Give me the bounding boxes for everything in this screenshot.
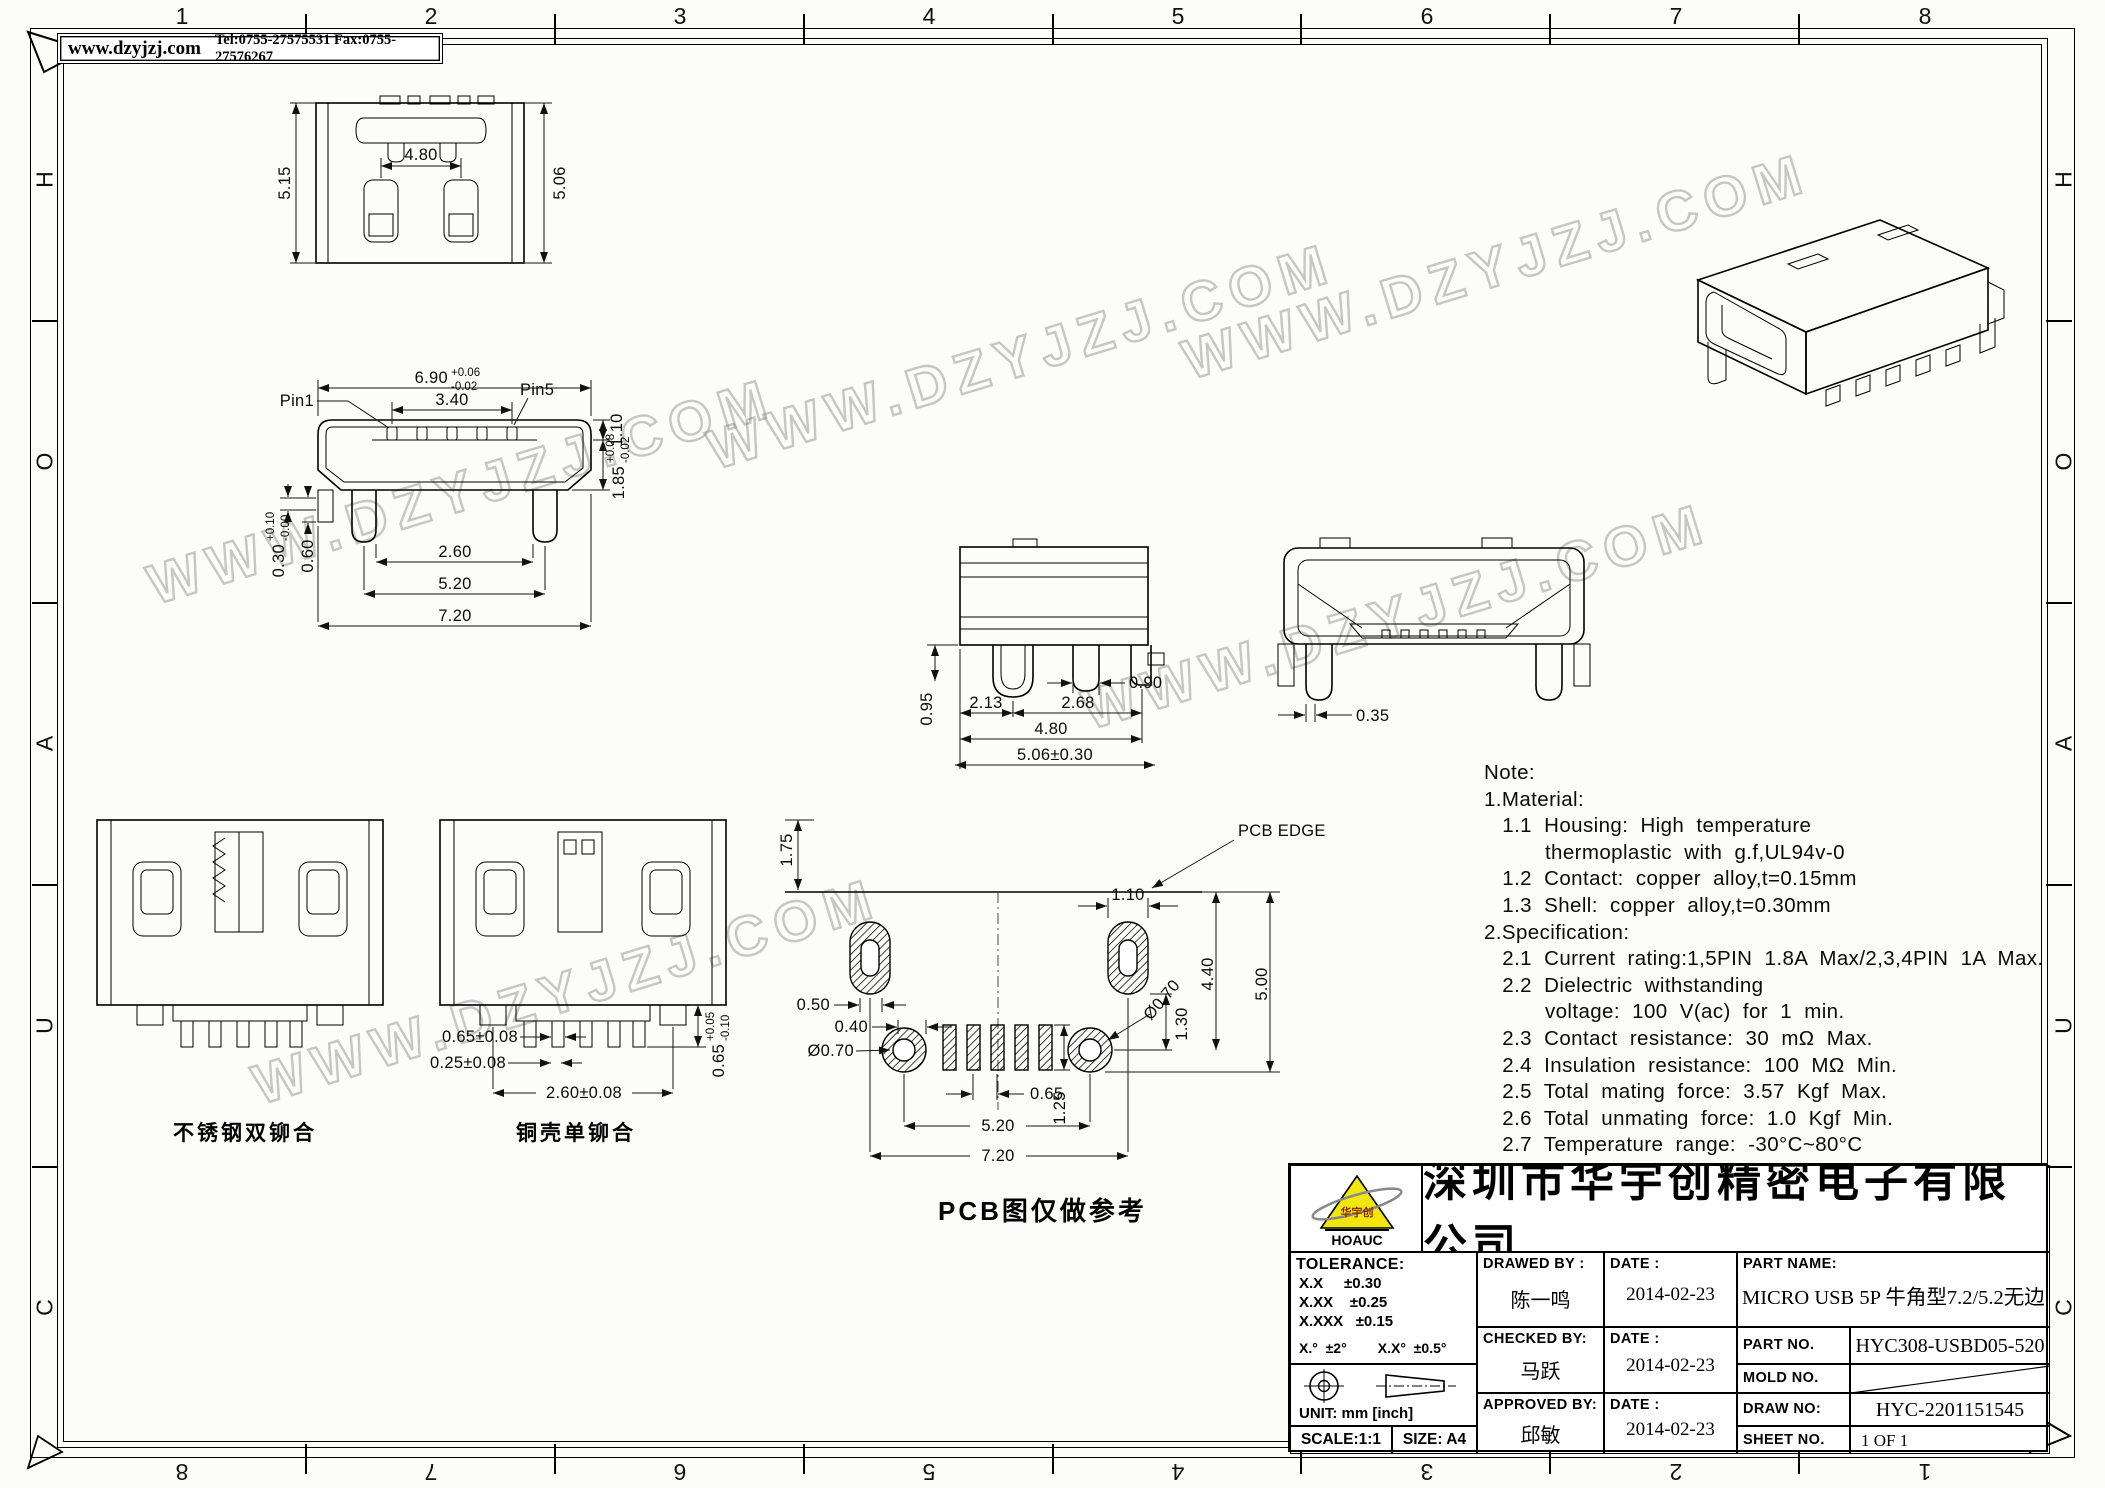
note-line: 2.7 Temperature range: -30°C~80°C [1484, 1132, 2064, 1159]
drawed-by-label: DRAWED BY : [1478, 1253, 1603, 1272]
tolerance-cell: TOLERANCE: X.X ±0.30 X.XX ±0.25 X.XXX ±0… [1290, 1252, 1477, 1364]
zone-letter-left: O [32, 447, 59, 477]
checked-by-cell: CHECKED BY: 马跃 [1477, 1327, 1604, 1393]
dim-front-pin-span: 3.40 [435, 391, 468, 409]
approved-by-cell: APPROVED BY: 邱敏 [1477, 1393, 1604, 1454]
note-line: 2.Specification: [1484, 920, 2064, 947]
zone-number-top: 3 [665, 3, 695, 30]
dim-pcb-v3: 5.00 [1253, 967, 1271, 1000]
dim-pcb-v2: 4.40 [1199, 957, 1217, 990]
zone-number-top: 1 [167, 3, 197, 30]
zone-letter-left: A [32, 729, 59, 759]
date-label: DATE : [1605, 1253, 1736, 1272]
zone-letter-left: H [32, 165, 59, 195]
dim-detail2-a: 0.65±0.08 [442, 1028, 518, 1046]
part-name-label: PART NAME: [1738, 1253, 2049, 1272]
tolerance-line: X.XXX ±0.15 [1291, 1312, 1476, 1331]
mold-no-blank-diagonal [1851, 1365, 2050, 1393]
zone-number-top: 6 [1412, 3, 1442, 30]
drawed-by-value: 陈一鸣 [1478, 1284, 1603, 1313]
logo-inner-text: 华宇创 [1341, 1205, 1374, 1219]
sheet-no-value-cell: 1 OF 1 [1850, 1426, 2050, 1454]
date-checked-value: 2014-02-23 [1605, 1355, 1736, 1377]
dim-front-step2: 0.60 [299, 539, 317, 572]
projection-symbol [1294, 1367, 1474, 1405]
part-no-label: PART NO. [1738, 1328, 1849, 1353]
tolerance-line: X.X ±0.30 [1291, 1274, 1476, 1293]
tolerance-line: X.XX ±0.25 [1291, 1293, 1476, 1312]
title-block: 华宇创 HOAUC 深圳市华宇创精密电子有限公司 TOLERANCE: X.X … [1288, 1163, 2048, 1452]
date-approved-value: 2014-02-23 [1605, 1419, 1736, 1441]
note-line: 2.5 Total mating force: 3.57 Kgf Max. [1484, 1079, 2064, 1106]
sheet-no-value: 1 OF 1 [1851, 1431, 2049, 1451]
dim-front-legs-inner: 2.60 [438, 543, 471, 561]
dim-top-left: 5.15 [276, 166, 294, 199]
top-view-dims: 5.15 5.06 4.80 [276, 103, 569, 263]
zone-number-top: 4 [914, 3, 944, 30]
dim-detail2-b: 0.25±0.08 [430, 1054, 506, 1072]
part-no-label-cell: PART NO. [1737, 1327, 1850, 1364]
detail2-dims: 0.65±0.08 0.25±0.08 2.60±0.08 0.65 +0.05… [430, 1005, 732, 1102]
view-rear: 0.35 [1262, 528, 1607, 768]
draw-no-value-cell: HYC-2201151545 [1850, 1393, 2050, 1426]
zone-number-bottom: 3 [1412, 1458, 1442, 1485]
dim-front-step1-group: 0.30 +0.10 -0.00 [265, 512, 292, 577]
dim-front-height-tol-minus: -0.02 [620, 437, 632, 463]
dim-rear-leg: 0.35 [1356, 707, 1389, 725]
zone-number-bottom: 1 [1910, 1458, 1940, 1485]
company-name: 深圳市华宇创精密电子有限公司 [1422, 1165, 2050, 1252]
approved-by-label: APPROVED BY: [1478, 1394, 1603, 1413]
detail1-outline [97, 820, 383, 1047]
rear-view-dims: 0.35 [1278, 704, 1389, 725]
zone-letter-right: O [2051, 447, 2078, 477]
drawing-sheet: 1 2 3 4 5 6 7 8 8 7 6 5 4 3 2 1 H O A U … [0, 0, 2105, 1488]
company-logo: 华宇创 HOAUC [1291, 1166, 1422, 1252]
size-cell: SIZE: A4 [1392, 1426, 1477, 1454]
unit-label: UNIT: mm [inch] [1291, 1405, 1413, 1422]
note-line: thermoplastic with g.f,UL94v-0 [1484, 840, 2064, 867]
corner-arrow-bottom-left [24, 1430, 70, 1476]
drawed-by-cell: DRAWED BY : 陈一鸣 [1477, 1252, 1604, 1327]
view-side: 0.95 0.90 2.13 2.68 4.80 5.06±0.30 [915, 533, 1205, 791]
note-line: 2.4 Insulation resistance: 100 MΩ Min. [1484, 1053, 2064, 1080]
dim-detail2-d-tol-plus: +0.05 [705, 1012, 717, 1041]
note-line: voltage: 100 V(ac) for 1 min. [1484, 999, 2064, 1026]
sheet-no-label-cell: SHEET NO. [1737, 1426, 1850, 1454]
note-line: 2.6 Total unmating force: 1.0 Kgf Min. [1484, 1106, 2064, 1133]
pcb-caption: PCB图仅做参考 [938, 1196, 1147, 1226]
pcb-dims: 1.75 PCB EDGE 1.10 0.50 0.40 Ø0.70 Ø0.70… [778, 820, 1326, 1165]
view-front: 6.90 +0.06 -0.02 3.40 Pin1 Pin5 1.10 1.8… [252, 348, 662, 668]
zone-letter-left: U [32, 1011, 59, 1041]
date-checked-cell: DATE : 2014-02-23 [1604, 1327, 1737, 1393]
note-line: 1.Material: [1484, 787, 2064, 814]
iso-view-outline [1698, 220, 2004, 406]
date-approved-cell: DATE : 2014-02-23 [1604, 1393, 1737, 1454]
note-line: 1.2 Contact: copper alloy,t=0.15mm [1484, 866, 2064, 893]
scale-label: SCALE:1:1 [1291, 1427, 1391, 1453]
dim-pcb-pad-height: 1.25 [1051, 1091, 1069, 1124]
zone-letter-left: C [32, 1293, 59, 1323]
note-line: Note: [1484, 760, 2064, 787]
zone-number-top: 8 [1910, 3, 1940, 30]
logo-cell: 华宇创 HOAUC [1290, 1165, 1422, 1252]
header-contact: Tel:0755-27575531 Fax:0755-27576267 [215, 32, 442, 66]
view-iso [1580, 172, 2020, 507]
detail2-outline [440, 820, 726, 1047]
dim-side-body: 0.95 [918, 692, 936, 725]
dim-detail2-c: 2.60±0.08 [546, 1084, 622, 1102]
mold-no-label-cell: MOLD NO. [1737, 1364, 1850, 1393]
pcb-edge-label: PCB EDGE [1238, 822, 1326, 840]
top-view-outline [316, 96, 524, 263]
note-line: 1.3 Shell: copper alloy,t=0.30mm [1484, 893, 2064, 920]
tolerance-angles: X.° ±2° X.X° ±0.5° [1291, 1340, 1476, 1356]
dim-side-total: 5.06±0.30 [1017, 746, 1093, 764]
label-pin5: Pin5 [520, 381, 554, 399]
mold-no-label: MOLD NO. [1738, 1365, 1849, 1386]
dim-pcb-total: 7.20 [981, 1147, 1014, 1165]
view-top: 5.15 5.06 4.80 [268, 88, 568, 283]
zone-number-bottom: 4 [1163, 1458, 1193, 1485]
view-pcb: 1.75 PCB EDGE 1.10 0.50 0.40 Ø0.70 Ø0.70… [770, 778, 1350, 1248]
date-drawed-cell: DATE : 2014-02-23 [1604, 1252, 1737, 1327]
zone-number-bottom: 7 [416, 1458, 446, 1485]
part-no-value-cell: HYC308-USBD05-520 [1850, 1327, 2050, 1364]
dim-pcb-slot-width: 1.10 [1111, 886, 1144, 904]
detail1-label: 不锈钢双铆合 [173, 1121, 317, 1145]
dim-top-right: 5.06 [551, 166, 569, 199]
part-no-value: HYC308-USBD05-520 [1851, 1335, 2049, 1358]
note-line: 1.1 Housing: High temperature [1484, 813, 2064, 840]
part-name-cell: PART NAME: MICRO USB 5P 牛角型7.2/5.2无边 [1737, 1252, 2050, 1327]
draw-no-label: DRAW NO: [1738, 1394, 1849, 1417]
zone-letter-right: H [2051, 165, 2078, 195]
date-label: DATE : [1605, 1394, 1736, 1413]
header-box: www.dzyjzj.com Tel:0755-27575531 Fax:075… [57, 33, 443, 64]
logo-text: HOAUC [1331, 1232, 1382, 1248]
date-drawed-value: 2014-02-23 [1605, 1284, 1736, 1306]
dim-pcb-offset: 1.75 [778, 833, 796, 866]
part-name-value: MICRO USB 5P 牛角型7.2/5.2无边 [1738, 1280, 2049, 1310]
checked-by-label: CHECKED BY: [1478, 1328, 1603, 1347]
detail2-label: 铜壳单铆合 [516, 1121, 636, 1145]
view-detail1: 不锈钢双铆合 [85, 810, 395, 1155]
dim-pcb-off1: 0.50 [797, 996, 830, 1014]
dim-front-height: 1.85 [610, 466, 628, 499]
notes-block: Note: 1.Material: 1.1 Housing: High temp… [1484, 760, 2064, 1159]
approved-by-value: 邱敏 [1478, 1419, 1603, 1448]
dim-side-span: 4.80 [1034, 720, 1067, 738]
dim-front-height-tol-plus: +0.08 [605, 434, 617, 463]
dim-front-total-width: 7.20 [438, 607, 471, 625]
side-view-dims: 0.95 0.90 2.13 2.68 4.80 5.06±0.30 [918, 645, 1162, 769]
zone-number-bottom: 8 [167, 1458, 197, 1485]
dim-pcb-hole-left: Ø0.70 [808, 1042, 854, 1060]
note-line: 2.2 Dielectric withstanding [1484, 973, 2064, 1000]
rear-view-outline [1278, 538, 1590, 700]
dim-top-inner: 4.80 [404, 146, 437, 164]
header-website: www.dzyjzj.com [68, 38, 201, 60]
note-line: 2.1 Current rating:1,5PIN 1.8A Max/2,3,4… [1484, 946, 2064, 973]
dim-front-step1-tol-plus: +0.10 [265, 512, 277, 541]
zone-letter-right: A [2051, 729, 2078, 759]
dim-pcb-hole-span: 5.20 [981, 1117, 1014, 1135]
date-label: DATE : [1605, 1328, 1736, 1347]
dim-front-width: 6.90 [415, 369, 448, 387]
tolerance-title: TOLERANCE: [1291, 1253, 1476, 1274]
mold-no-value-cell [1850, 1364, 2050, 1393]
dim-pcb-off2: 0.40 [835, 1018, 868, 1036]
dim-detail2-d-tol-minus: -0.10 [720, 1015, 732, 1041]
label-pin1: Pin1 [280, 392, 314, 410]
size-label: SIZE: A4 [1393, 1427, 1476, 1453]
projection-cell: UNIT: mm [inch] [1290, 1364, 1477, 1426]
zone-number-top: 7 [1661, 3, 1691, 30]
zone-number-top: 2 [416, 3, 446, 30]
dim-side-a: 2.13 [969, 694, 1002, 712]
zone-number-top: 5 [1163, 3, 1193, 30]
draw-no-value: HYC-2201151545 [1851, 1399, 2049, 1422]
zone-number-bottom: 6 [665, 1458, 695, 1485]
dim-detail2-d-group: 0.65 +0.05 -0.10 [705, 1012, 732, 1077]
scale-cell: SCALE:1:1 [1290, 1426, 1392, 1454]
draw-no-label-cell: DRAW NO: [1737, 1393, 1850, 1426]
dim-front-step1: 0.30 [270, 544, 288, 577]
front-view-outline [318, 420, 591, 542]
checked-by-value: 马跃 [1478, 1355, 1603, 1384]
dim-front-step1-tol-minus: -0.00 [280, 515, 292, 541]
zone-number-bottom: 2 [1661, 1458, 1691, 1485]
front-view-dims: 6.90 +0.06 -0.02 3.40 Pin1 Pin5 1.10 1.8… [265, 367, 632, 626]
dim-detail2-d: 0.65 [710, 1044, 728, 1077]
dim-front-width-tol-plus: +0.06 [451, 367, 480, 379]
view-detail2: 0.65±0.08 0.25±0.08 2.60±0.08 0.65 +0.05… [368, 810, 768, 1155]
dim-side-leg: 0.90 [1129, 674, 1162, 692]
dim-pcb-v1: 1.30 [1173, 1007, 1191, 1040]
zone-number-bottom: 5 [914, 1458, 944, 1485]
sheet-no-label: SHEET NO. [1738, 1427, 1849, 1448]
dim-side-b: 2.68 [1061, 694, 1094, 712]
note-line: 2.3 Contact resistance: 30 mΩ Max. [1484, 1026, 2064, 1053]
zone-letter-right: C [2051, 1293, 2078, 1323]
pcb-outline [785, 892, 1202, 1110]
dim-front-legs-span: 5.20 [438, 575, 471, 593]
